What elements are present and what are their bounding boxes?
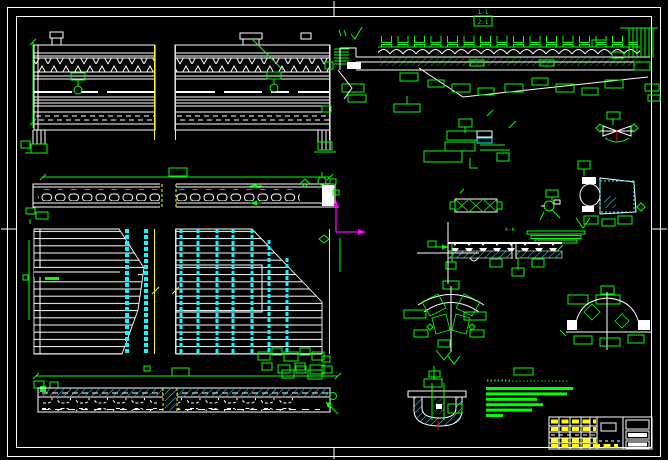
title-block: [549, 417, 652, 449]
leader-label: [267, 72, 281, 92]
notes-lines: [486, 387, 573, 417]
note-line: [486, 392, 567, 395]
view-girder-elevation-left: [21, 32, 155, 153]
left-end-label: [26, 208, 48, 224]
support-base-symbol: [21, 141, 47, 153]
detail-bearing-assembly: [424, 110, 516, 168]
detail-curb-section: [576, 161, 645, 228]
view-bridge-cross-section: 1-1 2:1: [334, 9, 660, 112]
view-k-k-section: k-k: [428, 227, 585, 276]
note-line: [486, 414, 503, 417]
section-label: 1-1: [478, 9, 489, 16]
title-block-right-column: [626, 420, 649, 448]
section-label: k-k: [505, 227, 516, 233]
crosshair-cursor: [417, 222, 479, 284]
view-deck-plan-right: [144, 229, 330, 374]
ucs-icon: [333, 200, 366, 272]
view-beam-side-elevation: [26, 168, 339, 224]
note-line: [486, 398, 537, 401]
section-scale-label: 2:1: [478, 19, 489, 26]
left-edge-marks: [334, 27, 362, 64]
detail-pier-cap: [404, 281, 486, 364]
detail-abutment: [560, 286, 652, 350]
title-block-greek-text: [551, 422, 620, 447]
support-base-symbol: [314, 142, 336, 152]
view-deck-plan-left: [23, 229, 159, 354]
note-line: [486, 387, 573, 390]
view-void-slab-longitudinal-section: [33, 366, 341, 414]
detail-drain: [408, 366, 466, 430]
detail-anchor: [540, 190, 560, 220]
end-hatch-block: [626, 28, 656, 58]
logo-box: [601, 423, 616, 431]
note-line: [486, 409, 532, 412]
detail-bowtie-joint: [596, 112, 638, 142]
detail-bearing-x-elevation: [450, 189, 502, 212]
left-abutment: [340, 48, 366, 102]
notes-block: [486, 368, 573, 417]
view-girder-elevation-right: [175, 33, 336, 152]
north-diamond: [319, 235, 329, 243]
drawing-sheet: 1-1 2:1: [0, 0, 668, 460]
note-line: [486, 403, 543, 406]
cad-canvas[interactable]: 1-1 2:1: [0, 0, 668, 460]
